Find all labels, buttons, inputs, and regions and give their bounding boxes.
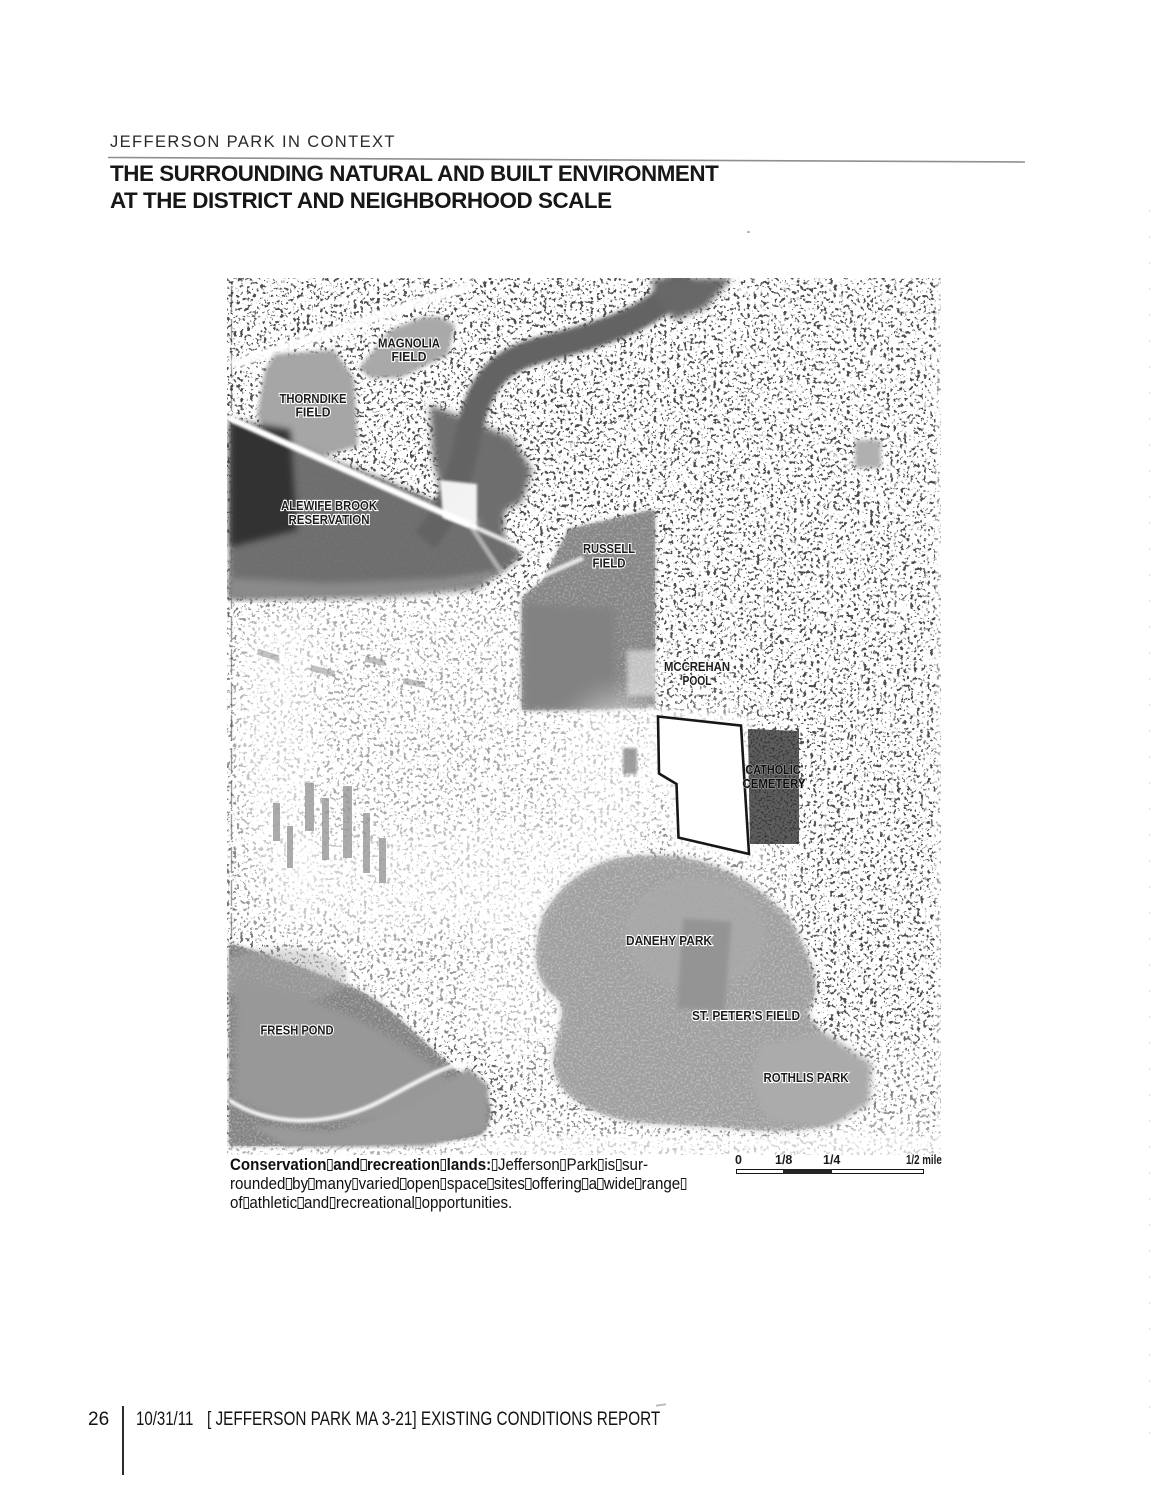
svg-text:DANEHY PARK: DANEHY PARK xyxy=(626,933,713,948)
svg-text:POOL: POOL xyxy=(683,673,712,688)
svg-text:RESERVATION: RESERVATION xyxy=(289,512,370,527)
svg-text:CEMETERY: CEMETERY xyxy=(743,776,806,791)
svg-text:FIELD: FIELD xyxy=(392,349,427,364)
svg-text:RUSSELL: RUSSELL xyxy=(583,541,635,556)
svg-text:ROTHLIS PARK: ROTHLIS PARK xyxy=(764,1071,849,1085)
svg-text:FRESH POND: FRESH POND xyxy=(261,1023,334,1038)
svg-text:FIELD: FIELD xyxy=(593,556,626,571)
svg-text:CATHOLIC: CATHOLIC xyxy=(746,762,802,777)
svg-text:ST. PETER'S FIELD: ST. PETER'S FIELD xyxy=(692,1009,800,1023)
svg-text:ALEWIFE BROOK: ALEWIFE BROOK xyxy=(281,498,378,513)
svg-text:FIELD: FIELD xyxy=(296,405,331,420)
svg-text:MCCREHAN: MCCREHAN xyxy=(664,659,730,674)
